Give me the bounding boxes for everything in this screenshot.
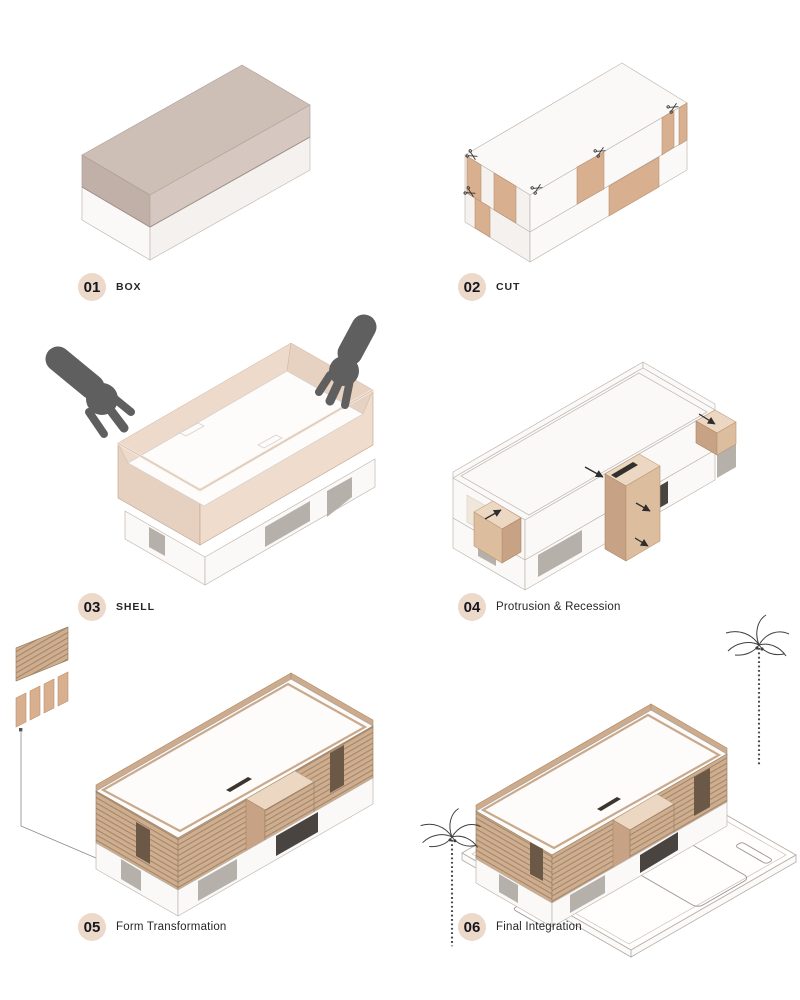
step-label: Protrusion & Recession [496,601,621,613]
leader-dot [19,728,22,731]
protrusion-recession-illustration [435,355,770,595]
step-label: BOX [116,281,141,293]
step-number-badge: 01 [78,273,106,301]
step-label: Final Integration [496,921,582,933]
cut-illustration [445,52,775,277]
step-05-caption: 05 Form Transformation [78,913,227,941]
left-hand-icon [58,359,131,434]
step-number-badge: 05 [78,913,106,941]
step-label: SHELL [116,601,155,613]
step-06-figure [402,615,797,950]
step-number-badge: 06 [458,913,486,941]
final-integration-illustration [402,615,797,950]
step-04-caption: 04 Protrusion & Recession [458,593,621,621]
palm-tree-icon [726,615,789,765]
step-number-badge: 02 [458,273,486,301]
step-06-caption: 06 Final Integration [458,913,582,941]
box-illustration [55,58,365,273]
shell-illustration [30,325,390,590]
step-label: Form Transformation [116,921,227,933]
step-02-figure [445,52,775,277]
facade-detail-panel [16,627,68,727]
step-02-caption: 02 CUT [458,273,520,301]
step-03-figure [30,325,390,590]
step-number-badge: 03 [78,593,106,621]
step-number-badge: 04 [458,593,486,621]
step-03-caption: 03 SHELL [78,593,155,621]
design-process-page: { "title": "Architectural form-finding p… [0,0,800,1000]
step-05-figure [8,618,388,918]
step-01-figure [55,58,365,273]
leader-line [21,731,96,858]
step-label: CUT [496,281,520,293]
step-04-figure [435,355,770,595]
step-01-caption: 01 BOX [78,273,141,301]
form-transformation-illustration [8,618,388,918]
